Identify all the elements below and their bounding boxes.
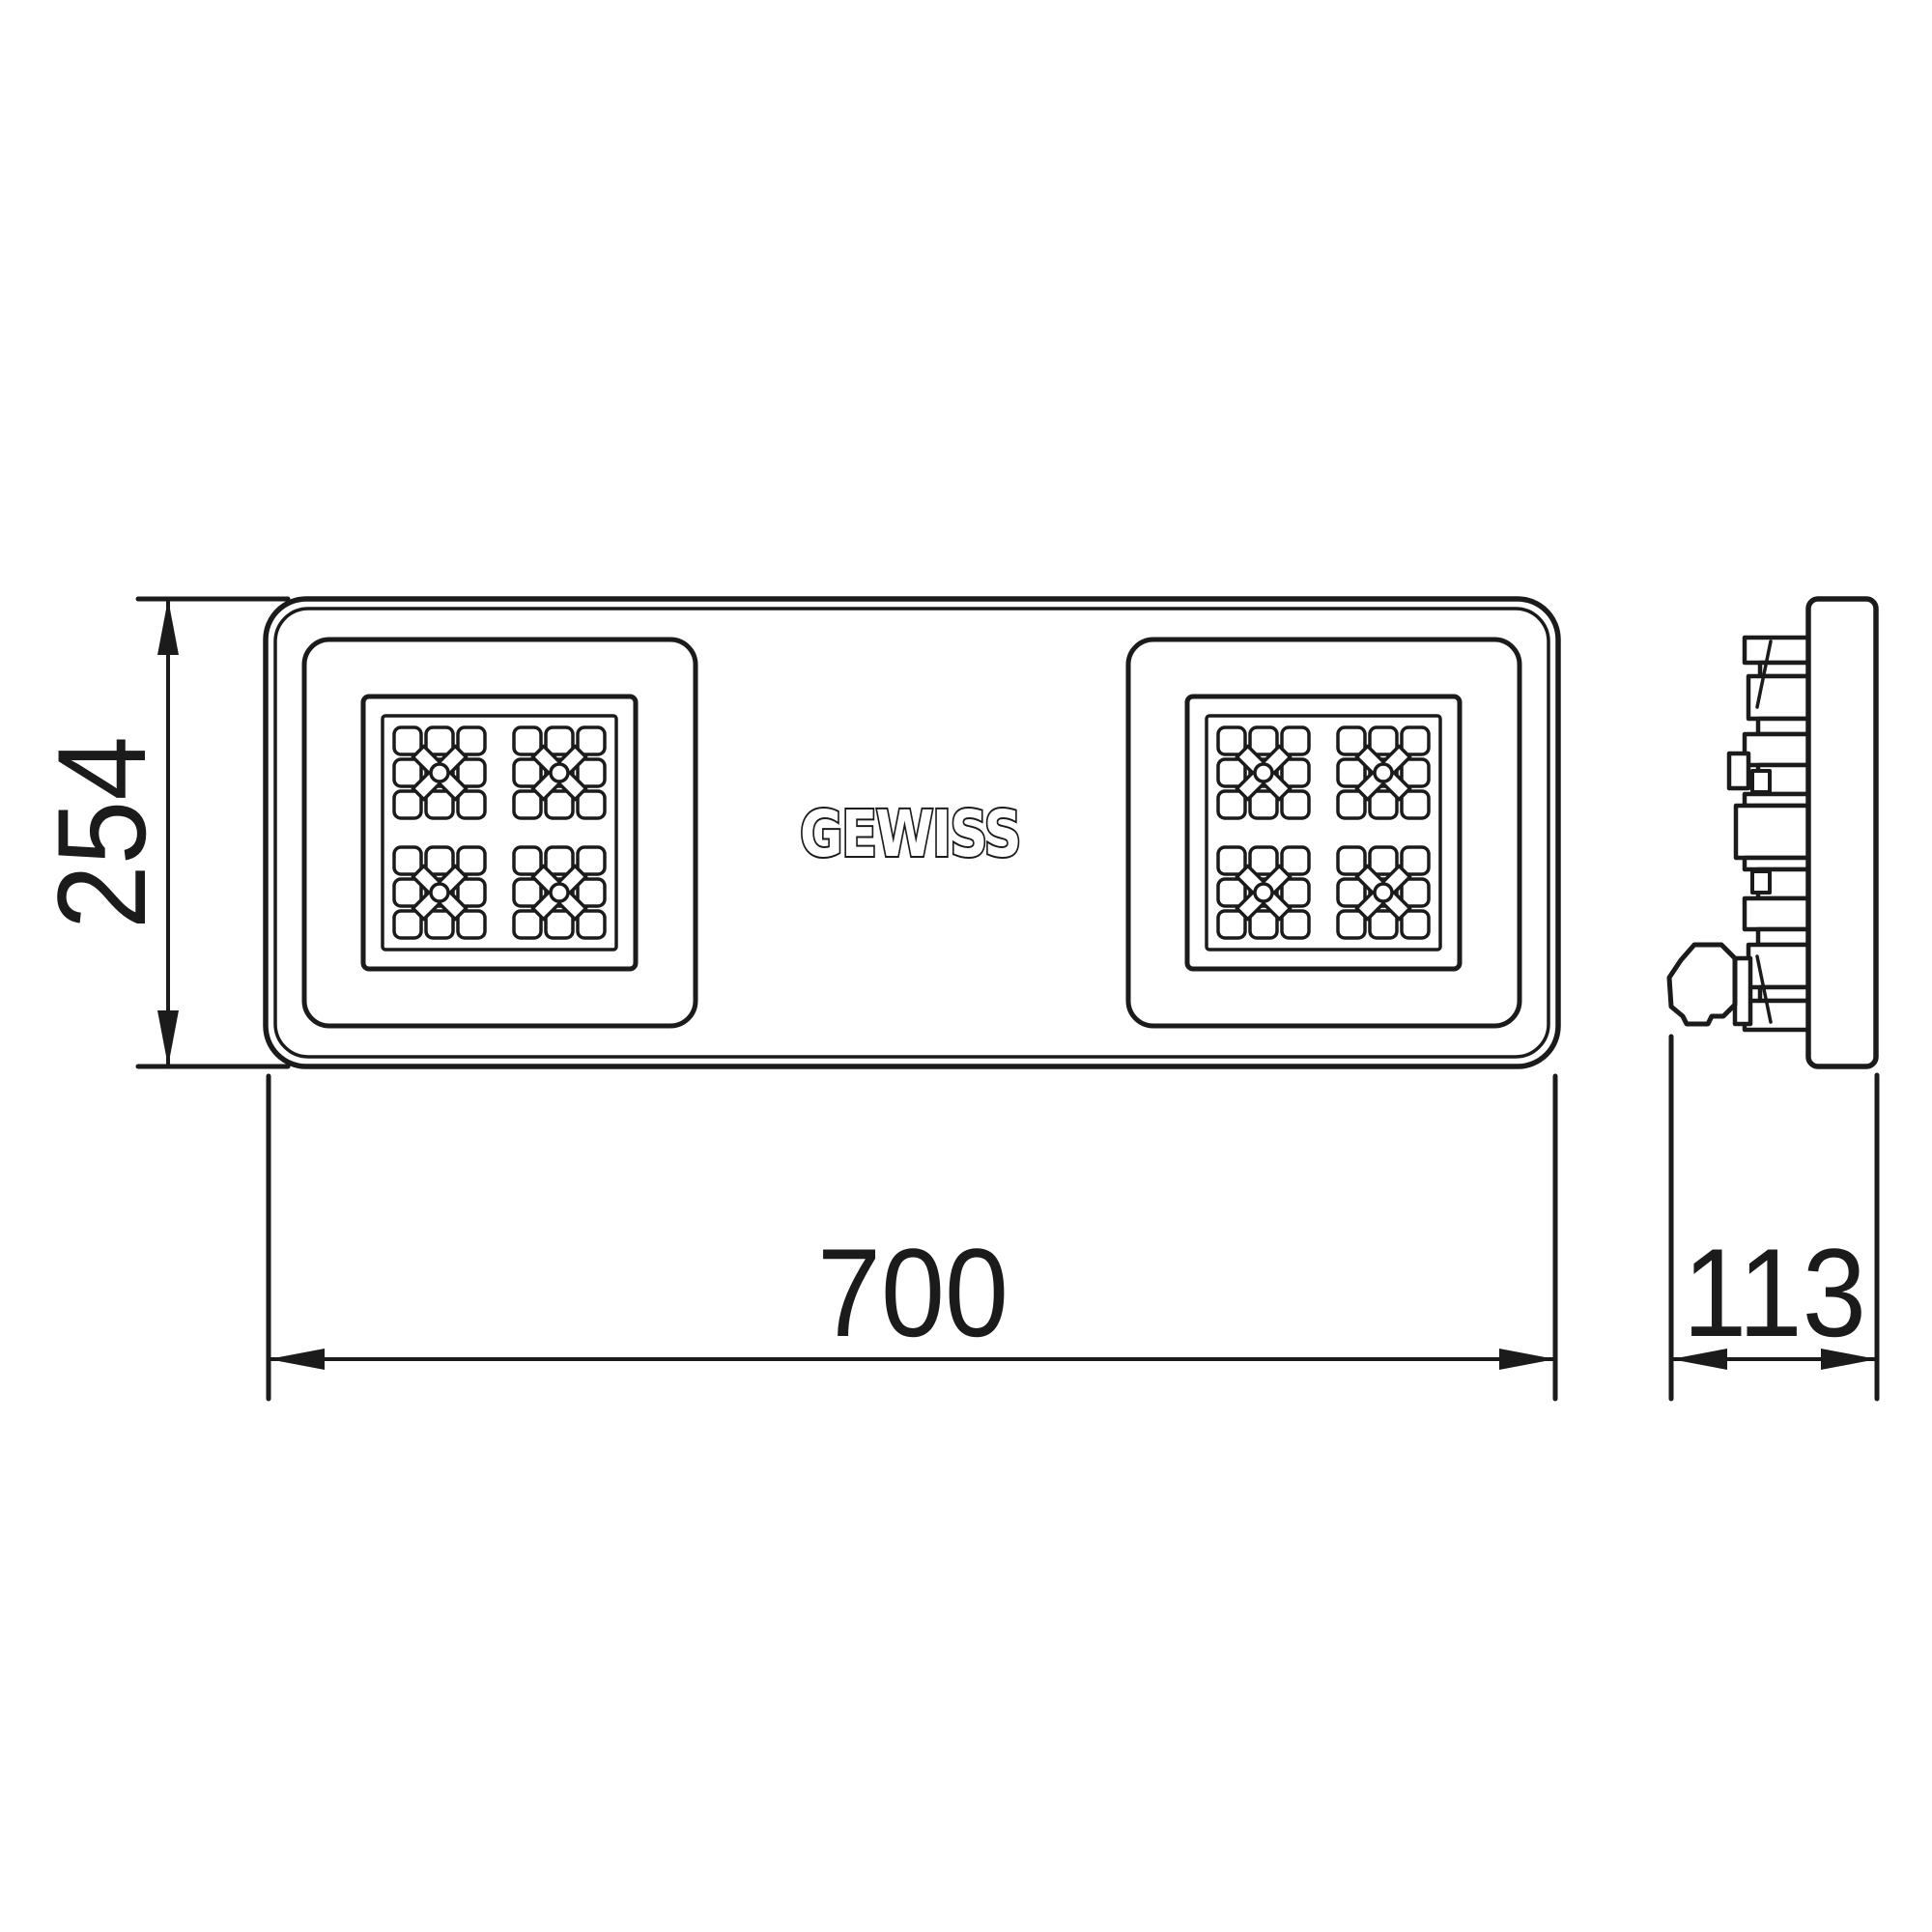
fin bbox=[1745, 638, 1810, 663]
side-view bbox=[1669, 599, 1876, 1066]
dimension-height: 254 bbox=[31, 599, 288, 1066]
arrowhead-up bbox=[157, 599, 179, 655]
keyway-notch bbox=[1752, 771, 1770, 792]
center-boss bbox=[1736, 806, 1810, 858]
led-module-left bbox=[304, 639, 696, 1026]
fin bbox=[1758, 719, 1810, 734]
dimension-depth: 113 bbox=[1671, 1037, 1877, 1399]
led-module-right bbox=[1128, 639, 1520, 1026]
fin bbox=[1758, 929, 1810, 945]
mounting-tab bbox=[1729, 753, 1748, 788]
arrowhead-right bbox=[1499, 1349, 1555, 1370]
keyway-notch bbox=[1752, 871, 1770, 893]
arrowhead-left bbox=[269, 1349, 325, 1370]
dimension-depth-label: 113 bbox=[1683, 1222, 1866, 1363]
brand-logo: GEWISS bbox=[800, 797, 1020, 871]
dimension-height-label: 254 bbox=[31, 736, 172, 929]
fin bbox=[1745, 1001, 1810, 1030]
cable-gland bbox=[1669, 945, 1735, 1024]
drawing-canvas: GEWISS bbox=[0, 0, 1932, 1932]
dimension-width: 700 bbox=[269, 1076, 1555, 1399]
floodlight-technical-drawing: GEWISS bbox=[0, 0, 1932, 1932]
arrowhead-down bbox=[157, 1010, 179, 1066]
fin bbox=[1745, 898, 1810, 929]
front-view: GEWISS bbox=[266, 599, 1558, 1066]
lens-slab bbox=[1808, 599, 1876, 1066]
fin bbox=[1745, 734, 1810, 765]
dimension-width-label: 700 bbox=[817, 1222, 1009, 1363]
